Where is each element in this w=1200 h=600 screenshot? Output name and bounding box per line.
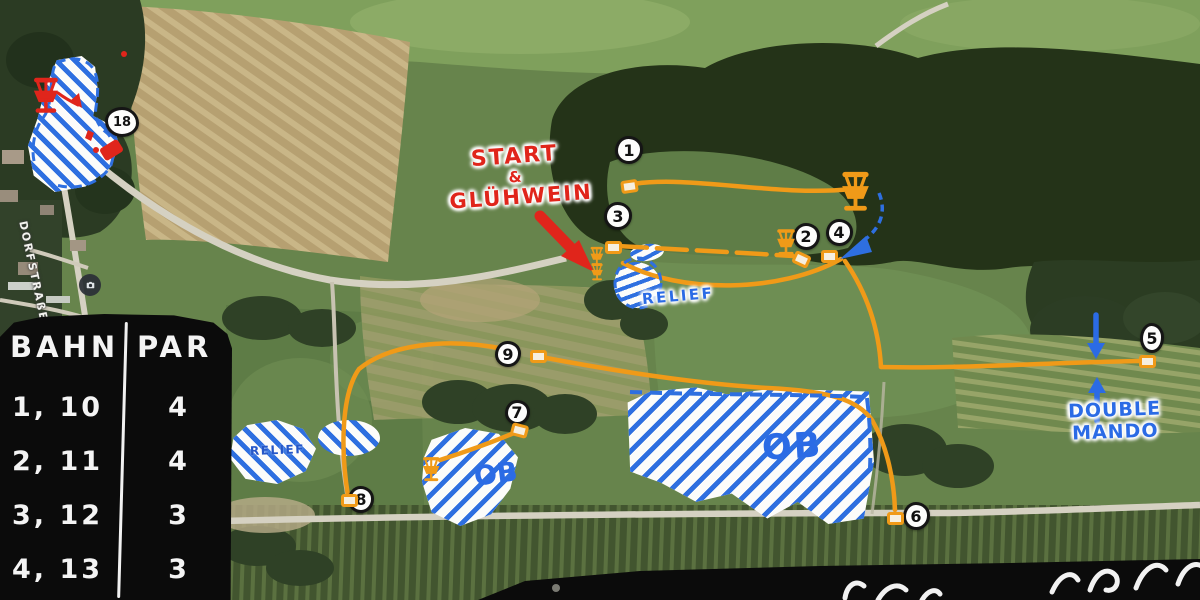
blue-arrowhead-hole-4 [840,236,872,259]
double-mando-line2: MANDO [1056,421,1175,444]
relief-label-left: RELIEF [250,443,305,457]
par-value: 4 [123,446,232,477]
double-mando-label: DOUBLE MANDO [1055,399,1174,447]
score-table-rows: 1, 1042, 1143, 1234, 133 [0,380,232,596]
par-column-header: PAR [123,330,232,364]
ob-label-left: OB [473,458,520,490]
score-table-panel: BAHN PAR 1, 1042, 1143, 1234, 133 [0,314,232,600]
par-value: 3 [123,554,232,585]
ob-dashed-border-big-top [630,392,866,397]
score-row-1: 1, 104 [0,380,232,434]
start-gluehwein-label: START & GLÜHWEIN [446,141,586,212]
score-row-3: 3, 123 [0,488,232,542]
ob-dashed-border-top-left [33,59,113,187]
score-row-2: 2, 114 [0,434,232,488]
ob-label-big: OB [761,428,823,466]
bahn-value: 2, 11 [0,446,123,477]
score-row-4: 4, 133 [0,542,232,596]
red-mark-b [93,147,99,153]
bahn-value: 3, 12 [0,500,123,531]
photo-sphere-icon [79,274,101,296]
ob-dashed-border-big-right [867,398,870,468]
bahn-value: 4, 13 [0,554,123,585]
dashed-drop-line-hole-4 [863,193,882,241]
red-mark-a [85,130,94,141]
flight-path-hole-7 [440,433,514,460]
par-value: 4 [123,392,232,423]
flight-path-descent-right [845,261,881,367]
red-mark-arrowhead-18 [70,93,82,108]
bahn-column-header: BAHN [0,330,123,364]
flight-path-arc-under-2-4 [623,259,841,285]
flight-path-over-ob [541,357,895,510]
flight-path-hole-5 [881,361,1141,367]
bahn-value: 1, 10 [0,392,123,423]
red-mark-c [121,51,127,57]
start-arrow-shaft [540,216,572,249]
score-table-header: BAHN PAR [0,330,232,364]
mando-arrow-down-head [1087,343,1105,359]
disc-golf-course-map: 13245678918 START & GLÜHWEIN RELIEF RELI… [0,0,1200,600]
flight-path-hole-1 [633,182,851,191]
road-dot [552,584,560,592]
mando-arrow-up-head [1088,377,1106,393]
flight-path-hole-3 [617,246,793,256]
par-value: 3 [123,500,232,531]
bottom-black-banner [478,559,1200,600]
